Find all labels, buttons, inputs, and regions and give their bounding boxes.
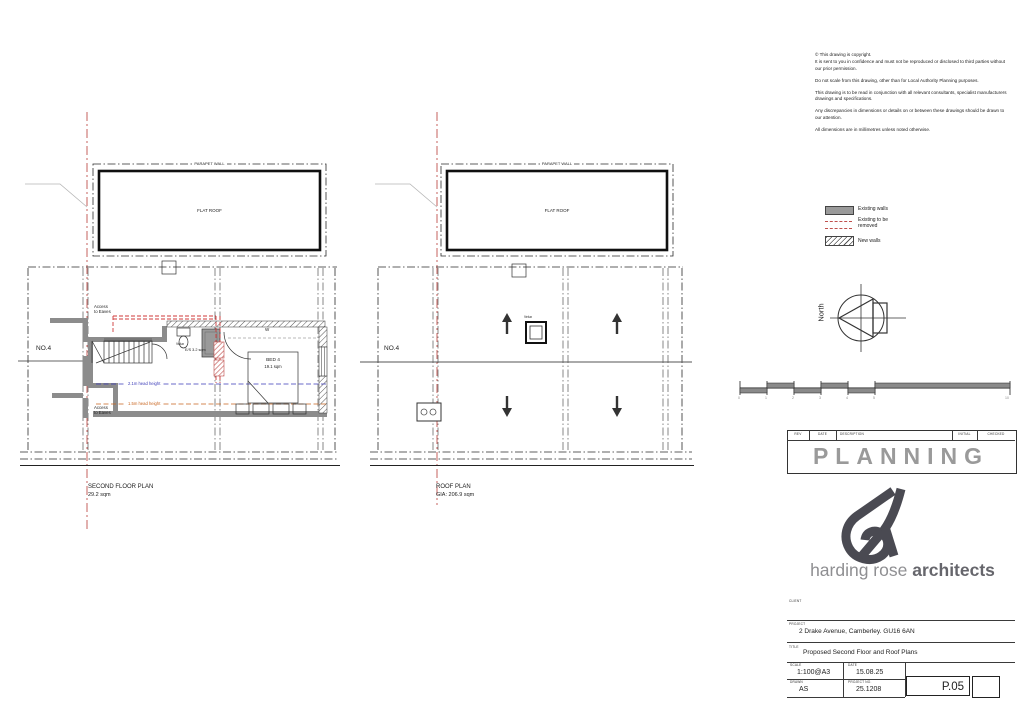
wardrobe-label: W	[265, 327, 269, 332]
legend-existing-label: Existing walls	[858, 206, 888, 212]
house-number-sf: NO.4	[36, 345, 51, 353]
revision-box	[972, 676, 1000, 698]
legend-removed-label: Existing to beremoved	[858, 217, 888, 229]
title-block-line	[787, 697, 905, 698]
rev-divider	[836, 430, 837, 440]
date-label: DATE	[848, 664, 857, 668]
scale-label: SCALE	[790, 664, 801, 668]
new-walls-swatch	[825, 236, 854, 246]
rev-header-description: DESCRIPTION	[840, 433, 864, 437]
planning-status: PLANNING	[787, 443, 1015, 471]
new-walls	[167, 321, 327, 413]
drawn-label: DRAWN	[790, 681, 803, 685]
chimney	[512, 264, 526, 277]
head-height-21-label: 2.1m head height	[126, 381, 162, 386]
project-value: 2 Drake Avenue, Camberley. GU16 6AN	[799, 628, 915, 636]
house-number-roof: NO.4	[384, 345, 399, 353]
project-label: PROJECT	[789, 623, 805, 627]
chimney-stack	[417, 403, 441, 421]
harding-rose-logo-mark	[846, 489, 901, 559]
parapet-wall-label-roof: PARAPET WALL	[447, 162, 667, 167]
access-eaves-bottom-label: Accessto Eaves	[94, 405, 111, 415]
access-eaves-top-label: Accessto Eaves	[94, 304, 111, 314]
ensuite-label: E/S 3.2 sqm	[185, 348, 206, 353]
bed4-label: BED 4 19.1 sqm	[250, 358, 296, 369]
drawing-sheet: PARAPET WALL FLAT ROOF NO.4 Accessto Eav…	[0, 0, 1024, 724]
velux-label-roof: Velux	[524, 316, 532, 320]
flat-roof-label-roof: FLAT ROOF	[447, 208, 667, 213]
velux-skylight	[526, 322, 546, 343]
scale-tick: 3	[819, 396, 821, 400]
second-floor-plan-drawing	[18, 112, 340, 532]
chimney	[162, 261, 176, 274]
drawing-notes: © This drawing is copyright. It is sent …	[815, 52, 1010, 134]
title-block-line	[787, 679, 905, 680]
door-swing	[152, 344, 167, 359]
logo-text-light: harding rose	[810, 560, 907, 580]
project-no-label: PROJECT NO.	[848, 681, 872, 685]
roof-plan-caption: ROOF PLAN GIA: 206.9 sqm	[436, 484, 474, 499]
client-label: CLIENT	[789, 600, 802, 604]
logo-text-bold: architects	[912, 560, 995, 580]
leader-line	[375, 184, 437, 207]
title-block-line	[787, 620, 1015, 621]
rev-header-initial: INITIAL	[952, 433, 977, 437]
date-value: 15.08.25	[856, 669, 883, 677]
title-value: Proposed Second Floor and Roof Plans	[803, 649, 918, 657]
north-arrow	[830, 284, 906, 352]
rev-header-rev: REV	[787, 433, 809, 437]
parapet-wall-label-sf: PARAPET WALL	[99, 162, 320, 167]
door-swing	[224, 332, 251, 359]
scale-tick: 0	[738, 396, 740, 400]
wc-cistern	[177, 328, 190, 336]
roof-plan-drawing	[360, 112, 694, 505]
title-block-line	[787, 662, 1015, 663]
scale-value: 1:100@A3	[797, 669, 830, 677]
existing-walls-swatch	[825, 206, 854, 215]
velux-label-sf: Velux	[176, 343, 184, 347]
scale-tick: 1	[765, 396, 767, 400]
title-label: TITLE	[789, 646, 799, 650]
scale-bar	[740, 381, 1010, 395]
second-floor-plan-caption: SECOND FLOOR PLAN 29.2 sqm	[88, 484, 153, 499]
removed-walls-swatch	[825, 228, 852, 229]
roof-slope-arrows	[502, 313, 622, 417]
head-height-15-label: 1.5m head height	[126, 401, 162, 406]
scale-tick: 5	[873, 396, 875, 400]
leader-line	[25, 184, 87, 207]
legend-new-label: New walls	[858, 238, 881, 244]
scale-tick: 2	[792, 396, 794, 400]
drawn-value: AS	[799, 686, 808, 694]
rev-header-line	[787, 440, 1015, 441]
harding-rose-logo-text: harding rose architects	[795, 560, 1010, 581]
removed-walls-swatch	[825, 221, 852, 222]
project-no-value: 25.1208	[856, 686, 881, 694]
rev-header-checked: CHECKED	[977, 433, 1015, 437]
title-block-line	[843, 662, 844, 697]
scale-tick: 10	[1005, 396, 1009, 400]
drawing-number-box: P.05	[906, 676, 970, 696]
title-block-line	[787, 642, 1015, 643]
scale-tick: 4	[846, 396, 848, 400]
north-label: North	[817, 303, 826, 321]
rev-header-date: DATE	[809, 433, 836, 437]
flat-roof-label-sf: FLAT ROOF	[99, 208, 320, 213]
window	[319, 347, 327, 376]
